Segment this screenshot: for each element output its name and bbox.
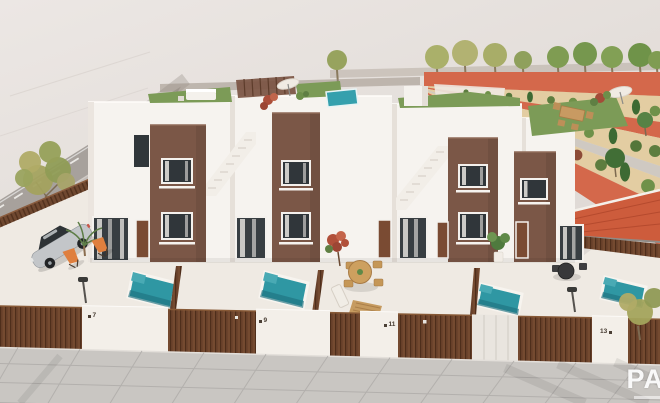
house-number-13: 13 (600, 329, 612, 336)
front-door (136, 220, 149, 258)
townhouse-row (88, 76, 633, 263)
gate-pillar (360, 311, 398, 359)
property-render: 7 9 11 13 PA (0, 0, 660, 403)
house-number-label: 13 (600, 329, 607, 336)
fence-gate (330, 313, 360, 358)
fence-gate (518, 316, 592, 364)
house-number-label: 9 (264, 318, 268, 325)
number-marker (384, 324, 387, 327)
house-number-11: 11 (384, 322, 395, 329)
house-number-label: 7 (93, 313, 97, 320)
intercom (423, 320, 427, 324)
number-marker (88, 315, 91, 318)
gate-pillar (592, 316, 628, 365)
front-door (437, 222, 448, 258)
garage-door (472, 314, 518, 362)
fence-gate (628, 319, 660, 366)
intercom (235, 316, 238, 319)
fence-gate (168, 309, 256, 355)
roof-plunge-pool (326, 89, 358, 107)
house-number-label: 11 (389, 322, 396, 329)
house-number-7: 7 (88, 313, 96, 320)
gate-pillar (256, 309, 330, 357)
number-marker (609, 331, 612, 334)
house-number-9: 9 (259, 318, 267, 325)
watermark: PA (626, 367, 660, 400)
front-door (516, 222, 528, 258)
watermark-subtext-bar (634, 396, 660, 400)
render-scene (0, 0, 660, 403)
fence-gate (398, 314, 472, 361)
front-door (378, 220, 391, 258)
fence-gate (0, 306, 82, 350)
window (134, 135, 149, 167)
watermark-text: PA (626, 364, 660, 394)
number-marker (259, 320, 262, 323)
